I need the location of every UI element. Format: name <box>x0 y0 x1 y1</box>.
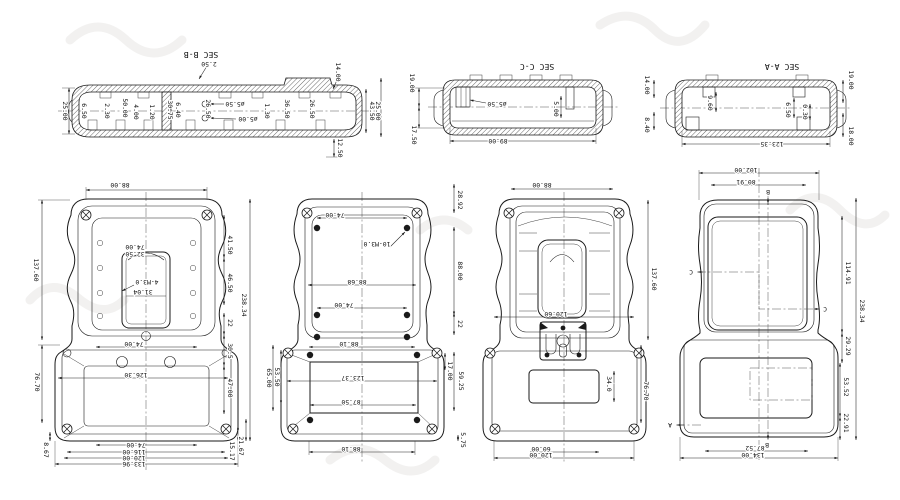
display-window-inner <box>712 221 803 326</box>
dim-label: 21.67 <box>237 436 245 455</box>
dim-label: 22.91 <box>842 413 850 432</box>
section-cut-lines <box>676 196 820 440</box>
dim-label: 8.67 <box>42 442 50 458</box>
dim-label: 102.00 <box>734 166 757 174</box>
section-mark: C <box>689 268 693 276</box>
dim-label: 120.60 <box>544 310 567 318</box>
dim-label: 74.00 <box>325 211 344 219</box>
dimension-lines <box>494 189 648 461</box>
dim-label: 123.35 <box>760 140 783 148</box>
section-label: SEC A-A <box>765 62 800 72</box>
belt-clip <box>538 240 586 360</box>
dimension-lines <box>413 88 596 144</box>
thread-note: 10-M3.0 <box>363 240 390 248</box>
dim-label: 14.00 <box>334 62 342 81</box>
screw-icon <box>202 210 212 220</box>
dim-label: 87.52 <box>745 444 764 452</box>
dim-label: 4.00 <box>132 104 140 120</box>
end-cap <box>837 90 846 128</box>
end-cap <box>603 90 612 126</box>
thread-note: 4-M3.0 <box>135 278 158 286</box>
dim-label: 137.60 <box>32 258 40 281</box>
dim-label: 120.00 <box>529 451 552 459</box>
dim-label: 2.50 <box>201 60 217 68</box>
cavity-outline <box>312 215 413 332</box>
dim-label: 5.75 <box>459 432 467 448</box>
dim-label: 65.00 <box>265 368 273 387</box>
dim-label: 19.00 <box>408 73 416 92</box>
end-cap <box>666 90 675 128</box>
screw-icon <box>62 424 72 434</box>
dim-label: 18.00 <box>847 126 855 145</box>
dim-label: 74.00 <box>125 243 144 251</box>
dim-label: 6.50 <box>80 103 88 119</box>
technical-drawing-canvas: SEC B-B 2.50 25.00 6.50 2.30 50.00 4.00 … <box>0 0 900 500</box>
dim-label: 34.0 <box>605 376 613 392</box>
dim-label: 8.40 <box>643 117 651 133</box>
dim-label: 22 <box>226 319 234 327</box>
outer-outline <box>483 199 646 441</box>
dim-label: 76.70 <box>33 372 41 391</box>
interior-details <box>289 225 436 430</box>
dim-label: 9.60 <box>706 95 714 111</box>
outer-outline <box>281 199 444 441</box>
dim-label: 1.20 <box>148 104 156 120</box>
inner-outline <box>305 207 420 338</box>
keyhole <box>557 335 569 347</box>
section-c-c: SEC C-C 19.00 17.50 ø5.50 5.00 89.00 <box>408 62 618 145</box>
dim-label: 46.50 <box>226 273 234 292</box>
dim-label: 29.29 <box>844 336 852 355</box>
dim-label: 41.50 <box>226 235 234 254</box>
dim-label: 80.91 <box>736 178 755 186</box>
dim-label: 88.00 <box>456 261 464 280</box>
screw-icon <box>302 208 312 218</box>
screw-icon <box>283 348 293 358</box>
dim-label: 28.92 <box>456 190 464 209</box>
dim-label: 74.00 <box>126 441 145 449</box>
dim-label: 88.10 <box>341 445 360 453</box>
section-wall-hatch <box>72 78 362 137</box>
view-bottom-case-inside: 88.00 137.60 76.70 8.67 41.50 46.50 22 3… <box>32 181 250 470</box>
section-mark: B <box>766 188 770 196</box>
screw-icon <box>485 348 495 358</box>
dim-label: 36.50 <box>283 99 291 118</box>
end-cap <box>434 90 443 126</box>
dim-label: 5.00 <box>552 101 560 117</box>
screw-icon <box>221 424 231 434</box>
display-window <box>708 217 807 330</box>
dim-label: 238.34 <box>240 293 248 316</box>
section-b-b: SEC B-B 2.50 25.00 6.50 2.30 50.00 4.00 … <box>58 50 382 158</box>
screw-icon <box>634 348 644 358</box>
dim-label: 26.50 <box>308 99 316 118</box>
dim-label: 114.91 <box>844 261 852 284</box>
inner-outline-wide <box>62 350 231 434</box>
screw-icon <box>288 424 298 434</box>
dim-label: 53.50 <box>273 367 281 386</box>
section-wall-hatch <box>443 80 603 135</box>
dim-label: 15.17 <box>228 441 236 460</box>
dim-label: 32.50 <box>125 250 144 258</box>
dim-label: 25.00 <box>61 101 69 120</box>
dim-label: 30.75 <box>166 100 174 119</box>
dim-label: 47.00 <box>226 378 234 397</box>
dim-label: 126.30 <box>124 371 147 379</box>
dim-label: 59.25 <box>457 371 465 390</box>
battery-door <box>700 358 812 418</box>
dim-label: 133.96 <box>122 460 145 468</box>
inner-outline-wide <box>492 351 637 431</box>
inner-outline <box>78 206 215 336</box>
dim-label: 88.68 <box>347 278 366 286</box>
dim-label: 87.50 <box>341 398 360 406</box>
dim-label: 123.37 <box>341 374 364 382</box>
screw-icon <box>427 424 437 434</box>
dim-label: 6.40 <box>174 102 182 118</box>
display-opening <box>310 362 418 413</box>
screw-icon <box>629 424 639 434</box>
dome-contour <box>518 217 612 226</box>
dim-label: 25.00 <box>374 101 382 120</box>
screw-icon <box>614 208 624 218</box>
dim-label: ø5.50 <box>225 100 244 108</box>
screw-icon <box>432 348 442 358</box>
cad-drawing-sheet: SEC B-B 2.50 25.00 6.50 2.30 50.00 4.00 … <box>0 0 900 500</box>
dim-label: 88.10 <box>339 340 358 348</box>
dim-label: 1.30 <box>263 103 271 119</box>
dim-label: 2.30 <box>103 103 111 119</box>
dim-label: 17.00 <box>446 361 454 380</box>
grip-ribs <box>519 233 610 311</box>
dim-label: 74.00 <box>334 301 353 309</box>
dim-label: ø5.50 <box>487 100 506 108</box>
dim-label: 6.50 <box>784 102 792 118</box>
dim-label: 74.00 <box>124 340 143 348</box>
screw-icon <box>504 208 514 218</box>
section-mark: C <box>823 305 827 313</box>
construction-rect <box>750 368 812 400</box>
dim-label: 14.00 <box>643 75 651 94</box>
dim-label: 0.30 <box>801 104 809 120</box>
screw-icon <box>412 208 422 218</box>
dim-label: 76.70 <box>642 381 650 400</box>
section-mark: A <box>668 421 672 429</box>
dim-label: 31.04 <box>133 288 152 296</box>
dim-label: 88.00 <box>532 181 551 189</box>
dim-label: ø5.00 <box>238 115 257 123</box>
dim-label: 30.5 <box>226 343 234 359</box>
dim-label: 17.50 <box>410 125 418 144</box>
dim-label: 26.50 <box>204 99 212 118</box>
dim-label: 19.00 <box>847 70 855 89</box>
dim-label: 137.60 <box>650 267 658 290</box>
interior-details <box>63 240 230 438</box>
view-top-case-outside: 88.00 137.60 76.70 120.60 34.0 60.00 120… <box>483 181 658 462</box>
section-label: SEC B-B <box>184 50 219 60</box>
dim-label: 88.00 <box>110 181 129 189</box>
outer-outline <box>55 199 238 441</box>
dim-label: 134.00 <box>741 451 764 459</box>
dim-label: 50.00 <box>121 98 129 117</box>
dim-label: 12.50 <box>336 138 344 157</box>
screw-icon <box>490 424 500 434</box>
dim-label: 238.34 <box>858 299 866 322</box>
screw-icon <box>81 210 91 220</box>
dim-label: 89.00 <box>488 137 507 145</box>
section-label: SEC C-C <box>520 62 555 72</box>
dim-label: 53.52 <box>842 377 850 396</box>
dim-label: 22 <box>456 320 464 328</box>
section-a-a: SEC A-A 14.00 8.40 19.00 18.00 9.60 6.50… <box>643 62 855 148</box>
